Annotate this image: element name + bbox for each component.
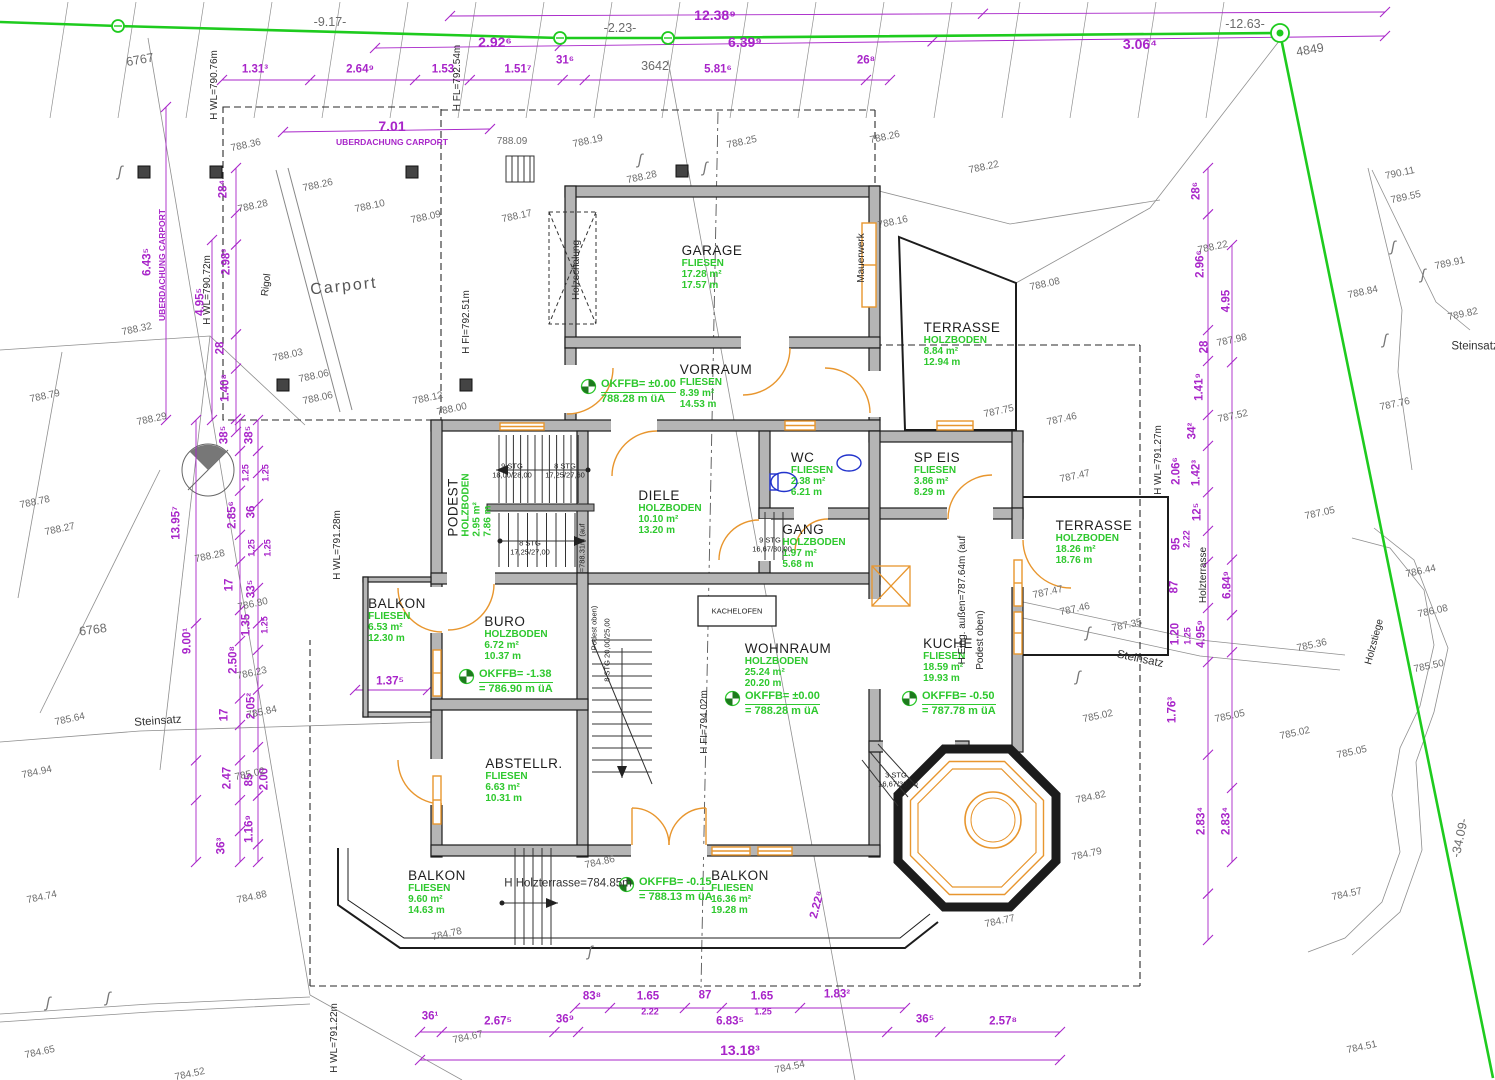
elevation-label: 788.09: [497, 137, 528, 147]
room-area: 2.95 m²: [472, 473, 483, 536]
dimension-label: 36⁵: [916, 1014, 934, 1026]
dimension-label: 2.83⁴: [1221, 807, 1233, 835]
dimension-label: 1.41⁹: [1194, 373, 1206, 401]
room-material: HOLZBODEN: [745, 656, 832, 667]
dimension-label: 38⁵: [244, 426, 256, 444]
dimension-label: 28⁶: [1191, 182, 1203, 200]
annotation-label: Mauerwerk: [857, 233, 867, 282]
room-area: 17.28 m²: [682, 269, 743, 280]
room-name: GARAGE: [682, 243, 743, 258]
terrain-break-symbol: ʃ: [1421, 268, 1425, 283]
room-name: SP EIS: [914, 450, 960, 465]
dimension-label: 6.84⁹: [1222, 571, 1234, 599]
terrain-break-symbol: ʃ: [638, 153, 642, 168]
dimension-label: 7.01: [378, 119, 405, 133]
level-target-icon: [580, 378, 597, 395]
annotation-label: KACHELOFEN: [712, 607, 763, 615]
parcel-number: -2.23-: [604, 22, 637, 35]
room-area: 9.60 m²: [408, 894, 466, 905]
room-perimeter: 13.20 m: [638, 525, 701, 536]
room-perimeter: 19.28 m: [711, 905, 769, 916]
dimension-label: 2.83⁴: [1196, 807, 1208, 835]
dimension-label: 36: [246, 506, 258, 519]
plan-linework: [0, 0, 1495, 1080]
dimension-label: 1.76³: [1167, 697, 1179, 723]
ffb-value: OKFFB= ±0.00: [601, 378, 676, 393]
dimension-label: 2.85⁶: [227, 501, 239, 529]
dimension-label: 1.40⁸: [220, 374, 232, 402]
dimension-label: UBERDACHUNG CARPORT: [158, 209, 167, 321]
annotation-label: 9 STG: [759, 536, 781, 544]
dimension-label: 1.37⁵: [376, 676, 404, 688]
dimension-label: 28: [1199, 341, 1211, 354]
terrain-break-symbol: ʃ: [106, 991, 110, 1006]
dimension-label: 1.20: [1170, 623, 1182, 645]
dimension-label: 2.57⁸: [989, 1016, 1017, 1028]
floor-level-note: OKFFB= ±0.00= 788.28 m üA: [724, 690, 820, 717]
terrain-break-symbol: ʃ: [46, 996, 50, 1011]
dimension-label: 31⁶: [556, 55, 574, 67]
dimension-label: 2.47: [222, 767, 234, 789]
dimension-label: 6.43⁵: [142, 248, 154, 276]
parcel-number: -9.17-: [314, 16, 347, 29]
room-name: WOHNRAUM: [745, 641, 832, 656]
room-label-diele: DIELEHOLZBODEN10.10 m²13.20 m: [638, 488, 701, 537]
room-label-balkon-sued-ost: BALKONFLIESEN16.36 m²19.28 m: [711, 868, 769, 917]
room-name: BURO: [484, 614, 547, 629]
dimension-label: 1.25: [1184, 627, 1193, 645]
annotation-label: 17,25/27,60: [545, 471, 585, 479]
room-label-balkon-west: BALKONFLIESEN6.53 m²12.30 m: [368, 596, 426, 645]
dimension-label: 1.42³: [1191, 460, 1203, 486]
dimension-label: 1.53: [432, 64, 454, 76]
dimension-label: 2.98³: [221, 249, 233, 275]
annotation-label: H FL=792.54m: [453, 45, 463, 111]
terrain-break-symbol: ʃ: [1076, 670, 1080, 685]
floor-level-note: OKFFB= -0.15= 788.13 m üA: [618, 876, 713, 903]
room-material: HOLZBODEN: [461, 473, 472, 536]
dimension-label: 2.22: [641, 1008, 659, 1017]
dimension-label: 1.31³: [242, 64, 268, 76]
room-name: PODEST: [446, 473, 461, 536]
room-name: TERRASSE: [924, 320, 1001, 335]
room-perimeter: 19.93 m: [923, 673, 973, 684]
dimension-label: 13.95⁷: [171, 506, 183, 540]
terrain-break-symbol: ʃ: [1383, 333, 1387, 348]
room-name: VORRAUM: [680, 362, 753, 377]
annotation-label: H Eing. außen=787.64m (auf: [958, 536, 968, 665]
room-material: FLIESEN: [485, 771, 562, 782]
terrain-break-symbol: ʃ: [1086, 626, 1090, 641]
room-perimeter: 7.86 m: [483, 473, 494, 536]
dimension-label: 1.25: [262, 464, 271, 482]
room-perimeter: 12.94 m: [924, 357, 1001, 368]
dimension-label: UBERDACHUNG CARPORT: [336, 138, 448, 147]
dimension-label: 12.38⁹: [694, 8, 736, 22]
dimension-label: 13.18³: [720, 1043, 760, 1057]
room-material: HOLZBODEN: [924, 335, 1001, 346]
room-perimeter: 10.37 m: [484, 651, 547, 662]
floor-plan-canvas: GARAGEFLIESEN17.28 m²17.57 mVORRAUMFLIES…: [0, 0, 1495, 1080]
room-material: FLIESEN: [711, 883, 769, 894]
dimension-label: 36³: [216, 838, 228, 855]
annotation-label: H FI=792.51m: [462, 290, 472, 354]
annotation-label: 8 STG: [554, 462, 576, 470]
dimension-label: 2.92⁶: [478, 35, 512, 49]
terrain-break-symbol: ʃ: [703, 161, 707, 176]
dimension-label: 1.25: [242, 464, 251, 482]
ffb-value: OKFFB= ±0.00: [745, 690, 820, 705]
room-label-balkon-sued-west: BALKONFLIESEN9.60 m²14.63 m: [408, 868, 466, 917]
ffb-elevation: 788.28 m üA: [601, 393, 676, 406]
dimension-label: 6.39⁹: [728, 35, 762, 49]
room-name: ABSTELLR.: [485, 756, 562, 771]
room-area: 3.86 m²: [914, 476, 960, 487]
room-perimeter: 14.53 m: [680, 399, 753, 410]
annotation-label: H FI=794.02m: [700, 690, 710, 754]
room-material: FLIESEN: [682, 258, 743, 269]
dimension-label: 4.95⁹: [1196, 620, 1208, 648]
dimension-label: 28: [215, 342, 227, 355]
dimension-label: 3.06⁴: [1123, 37, 1157, 51]
room-label-gang: GANGHOLZBODEN1.97 m²5.68 m: [782, 522, 845, 571]
dimension-label: 1.25: [264, 539, 273, 557]
annotation-label: Podest oben): [590, 606, 598, 651]
annotation-label: =788.31m (auf: [578, 524, 586, 573]
room-label-wc: WCFLIESEN2.38 m²6.21 m: [791, 450, 833, 499]
floor-level-note: OKFFB= -0.50= 787.78 m üA: [901, 690, 996, 717]
dimension-label: 28⁴: [218, 180, 230, 198]
annotation-label: H WL=790.76m: [210, 50, 220, 120]
room-label-terrasse-nord: TERRASSEHOLZBODEN8.84 m²12.94 m: [924, 320, 1001, 369]
dimension-label: 87: [1169, 581, 1181, 594]
room-area: 16.36 m²: [711, 894, 769, 905]
annotation-label: 8 STG: [519, 539, 541, 547]
room-name: BALKON: [368, 596, 426, 611]
dimension-label: 1.65: [637, 991, 659, 1003]
room-perimeter: 10.31 m: [485, 793, 562, 804]
dimension-label: 17: [219, 709, 231, 722]
annotation-label: 16,67/30,00: [752, 545, 792, 553]
dimension-label: 1.65: [751, 991, 773, 1003]
ffb-value: OKFFB= -0.15: [639, 876, 713, 891]
room-label-abstellraum: ABSTELLR.FLIESEN6.63 m²10.31 m: [485, 756, 562, 805]
annotation-label: 18,00/28,00: [492, 471, 532, 479]
room-area: 6.53 m²: [368, 622, 426, 633]
annotation-label: 8 STG 20,00/25,00: [603, 618, 611, 681]
dimension-label: 2.06⁶: [1171, 457, 1183, 485]
room-label-garage: GARAGEFLIESEN17.28 m²17.57 m: [682, 243, 743, 292]
room-perimeter: 20.20 m: [745, 678, 832, 689]
dimension-label: 2.64⁹: [346, 64, 374, 76]
octagon-bay: [898, 749, 1056, 907]
parcel-number: 3642: [641, 60, 669, 73]
annotation-label: H WL=791.22m: [330, 1003, 340, 1073]
dimension-label: 4.95: [1221, 290, 1233, 312]
level-target-icon: [458, 668, 475, 685]
room-name: BALKON: [408, 868, 466, 883]
level-target-icon: [724, 690, 741, 707]
dimension-label: 87: [699, 990, 712, 1002]
room-material: HOLZBODEN: [1056, 533, 1133, 544]
annotation-label: 9 STG: [501, 462, 523, 470]
parcel-number: -12.63-: [1225, 18, 1265, 31]
room-label-podest: PODESTHOLZBODEN2.95 m²7.86 m: [446, 473, 495, 536]
dimension-label: 34²: [1187, 423, 1199, 440]
ffb-value: OKFFB= -1.38: [479, 668, 553, 683]
room-material: FLIESEN: [680, 377, 753, 388]
dimension-label: 1.51⁷: [504, 64, 531, 76]
room-material: FLIESEN: [408, 883, 466, 894]
dimension-label: 12⁵: [1192, 503, 1204, 521]
terrain-break-symbol: ʃ: [118, 165, 122, 180]
annotation-label: Holzschalung: [572, 240, 582, 300]
room-name: DIELE: [638, 488, 701, 503]
dimension-label: 1.35: [241, 614, 253, 636]
room-label-terrasse-ost: TERRASSEHOLZBODEN18.26 m²18.76 m: [1056, 518, 1133, 567]
dimension-label: 1.83²: [824, 989, 850, 1001]
dimension-label: 33⁵: [246, 580, 258, 598]
room-perimeter: 18.76 m: [1056, 555, 1133, 566]
ffb-value: OKFFB= -0.50: [922, 690, 996, 705]
dimension-label: 38⁵: [219, 426, 231, 444]
ffb-elevation: = 786.90 m üA: [479, 683, 553, 696]
dimension-label: 1.25: [248, 539, 257, 557]
dimension-label: 36¹: [422, 1011, 439, 1023]
survey-fence-ticks: [50, 2, 1224, 118]
annotation-label: Podest oben): [976, 610, 986, 670]
room-label-wohnraum: WOHNRAUMHOLZBODEN25.24 m²20.20 m: [745, 641, 832, 690]
floor-level-note: OKFFB= -1.38= 786.90 m üA: [458, 668, 553, 695]
annotation-label: 16,67/30,00: [878, 780, 918, 788]
dimension-label: 6.83⁵: [716, 1016, 744, 1028]
ffb-elevation: = 787.78 m üA: [922, 705, 996, 718]
room-material: HOLZBODEN: [638, 503, 701, 514]
room-area: 6.72 m²: [484, 640, 547, 651]
ffb-elevation: = 788.28 m üA: [745, 705, 820, 718]
annotation-label: 17,25/27,00: [510, 548, 550, 556]
room-perimeter: 12.30 m: [368, 633, 426, 644]
dimension-label: 1.25: [261, 616, 270, 634]
room-material: HOLZBODEN: [484, 629, 547, 640]
annotation-label: Steinsatz: [1451, 341, 1495, 353]
dimension-label: 26⁸: [857, 55, 875, 67]
benchmark-symbol: [182, 444, 234, 496]
room-perimeter: 14.63 m: [408, 905, 466, 916]
annotation-label: H Holzterrasse=784.85m: [504, 878, 632, 890]
room-area: 18.26 m²: [1056, 544, 1133, 555]
room-perimeter: 6.21 m: [791, 487, 833, 498]
room-material: FLIESEN: [914, 465, 960, 476]
room-label-speis: SP EISFLIESEN3.86 m²8.29 m: [914, 450, 960, 499]
annotation-label: Holzterrasse: [1199, 547, 1209, 603]
dimension-label: 17: [224, 579, 236, 592]
room-label-buro: BUROHOLZBODEN6.72 m²10.37 m: [484, 614, 547, 663]
room-area: 8.84 m²: [924, 346, 1001, 357]
room-name: GANG: [782, 522, 845, 537]
dimension-label: 36⁹: [556, 1014, 574, 1026]
level-target-icon: [901, 690, 918, 707]
floor-level-note: OKFFB= ±0.00788.28 m üA: [580, 378, 676, 405]
room-perimeter: 17.57 m: [682, 280, 743, 291]
room-area: 25.24 m²: [745, 667, 832, 678]
room-label-vorraum: VORRAUMFLIESEN8.39 m²14.53 m: [680, 362, 753, 411]
ffb-elevation: = 788.13 m üA: [639, 891, 713, 904]
annotation-label: H WL=791.27m: [1154, 425, 1164, 495]
annotation-label: 3 STG: [885, 771, 907, 779]
room-area: 8.39 m²: [680, 388, 753, 399]
dimension-label: 2.22: [1183, 530, 1192, 548]
room-material: FLIESEN: [368, 611, 426, 622]
room-area: 10.10 m²: [638, 514, 701, 525]
room-name: BALKON: [711, 868, 769, 883]
room-name: TERRASSE: [1056, 518, 1133, 533]
room-area: 2.38 m²: [791, 476, 833, 487]
room-material: FLIESEN: [791, 465, 833, 476]
terrain-break-symbol: ʃ: [1391, 240, 1395, 255]
annotation-label: H WL=790.72m: [203, 255, 213, 325]
room-area: 1.97 m²: [782, 548, 845, 559]
dimension-label: 1.16⁹: [244, 815, 256, 843]
room-perimeter: 8.29 m: [914, 487, 960, 498]
dimension-label: 2.67⁵: [484, 1016, 512, 1028]
dimension-label: 1.25: [754, 1008, 772, 1017]
terrain-break-symbol: ʃ: [588, 945, 592, 960]
dimension-label: 9.00¹: [182, 628, 194, 654]
dimension-label: 5.81⁶: [704, 64, 732, 76]
room-name: WC: [791, 450, 833, 465]
room-perimeter: 5.68 m: [782, 559, 845, 570]
room-area: 6.63 m²: [485, 782, 562, 793]
room-material: HOLZBODEN: [782, 537, 845, 548]
dimension-label: 83⁸: [583, 991, 601, 1003]
annotation-label: H WL=791.28m: [333, 510, 343, 580]
